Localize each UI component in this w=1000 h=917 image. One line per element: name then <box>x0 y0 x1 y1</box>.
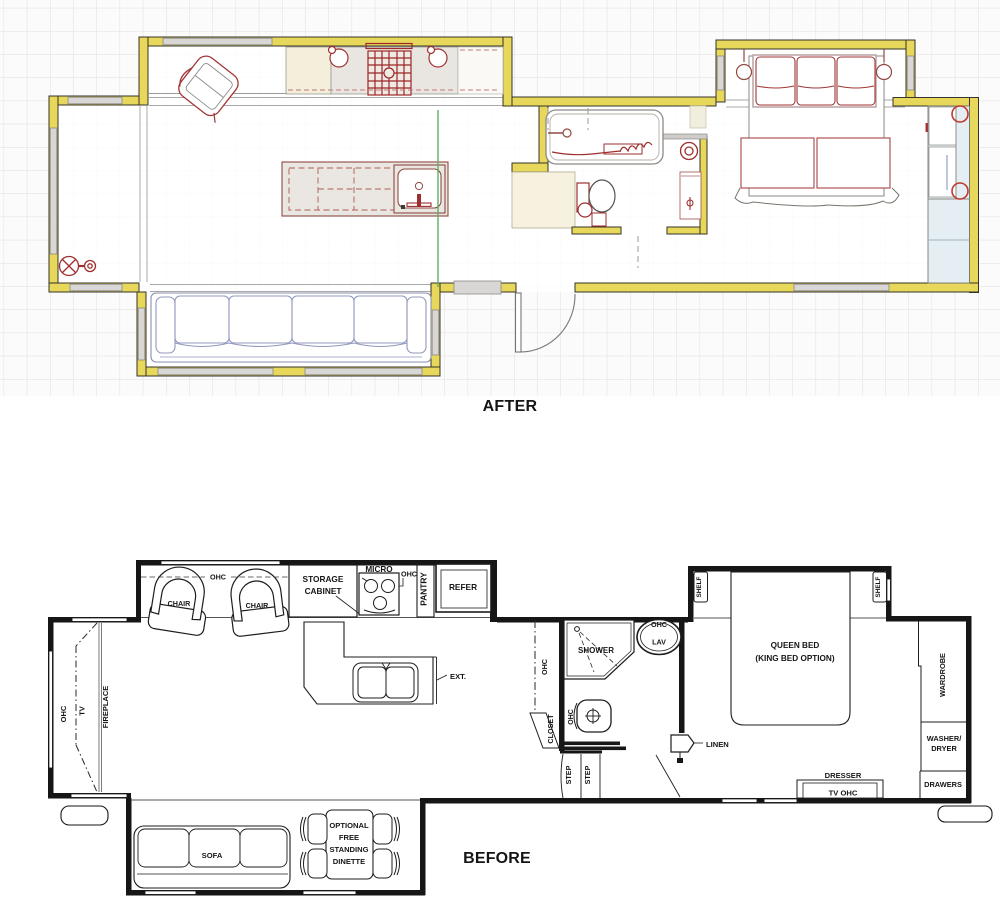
svg-text:DRAWERS: DRAWERS <box>924 780 962 789</box>
svg-text:WASHER/: WASHER/ <box>927 734 962 743</box>
svg-text:SOFA: SOFA <box>202 851 223 860</box>
svg-text:OPTIONAL: OPTIONAL <box>329 821 369 830</box>
svg-text:AFTER: AFTER <box>483 398 538 415</box>
svg-text:OHC: OHC <box>59 705 68 722</box>
svg-text:DINETTE: DINETTE <box>333 857 366 866</box>
svg-text:STEP: STEP <box>583 765 592 784</box>
svg-text:STEP: STEP <box>564 765 573 784</box>
svg-text:FREE: FREE <box>339 833 359 842</box>
svg-text:EXT.: EXT. <box>450 672 466 681</box>
svg-text:STORAGE: STORAGE <box>303 574 344 584</box>
svg-text:OHC: OHC <box>210 573 226 582</box>
svg-text:OHC: OHC <box>540 659 549 675</box>
svg-text:(KING BED OPTION): (KING BED OPTION) <box>755 654 834 663</box>
svg-text:LAV: LAV <box>652 638 666 647</box>
svg-text:SHELF: SHELF <box>875 576 882 597</box>
svg-text:SHELF: SHELF <box>696 576 703 597</box>
svg-text:CHAIR: CHAIR <box>246 601 270 610</box>
svg-text:WARDROBE: WARDROBE <box>938 653 947 697</box>
svg-text:REFER: REFER <box>449 582 477 592</box>
svg-text:PANTRY: PANTRY <box>419 572 429 606</box>
svg-text:TV OHC: TV OHC <box>829 789 858 798</box>
svg-text:BEFORE: BEFORE <box>463 850 531 867</box>
svg-text:CLOSET: CLOSET <box>546 714 555 744</box>
svg-text:QUEEN BED: QUEEN BED <box>771 641 820 650</box>
svg-text:DRYER: DRYER <box>931 744 957 753</box>
svg-text:OHC: OHC <box>568 709 575 725</box>
svg-text:CHAIR: CHAIR <box>168 599 192 608</box>
svg-text:TV: TV <box>78 706 87 716</box>
svg-text:OHC: OHC <box>401 570 417 579</box>
svg-text:LINEN: LINEN <box>706 740 729 749</box>
svg-text:DRESSER: DRESSER <box>825 771 862 780</box>
svg-text:FIREPLACE: FIREPLACE <box>101 686 110 729</box>
svg-text:STANDING: STANDING <box>329 845 368 854</box>
svg-text:SHOWER: SHOWER <box>578 646 614 655</box>
svg-text:OHC: OHC <box>651 620 667 629</box>
svg-text:CABINET: CABINET <box>305 586 342 596</box>
